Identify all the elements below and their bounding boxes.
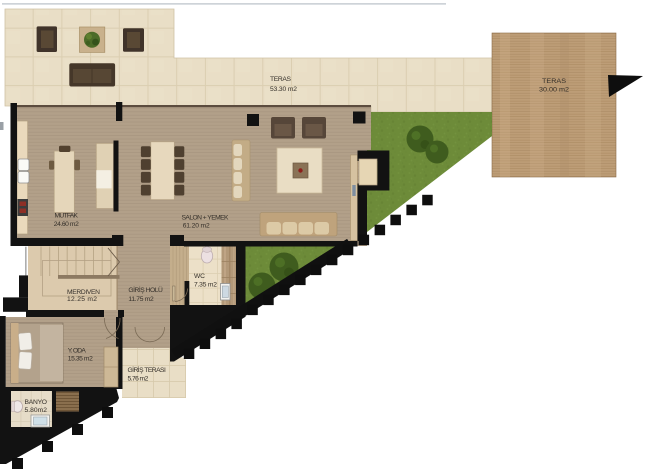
svg-text:MUTFAK: MUTFAK [55, 213, 79, 220]
svg-text:24.60 m2: 24.60 m2 [54, 221, 79, 228]
svg-text:5.76 m2: 5.76 m2 [128, 375, 149, 382]
svg-text:GİRİŞ HOLÜ: GİRİŞ HOLÜ [128, 285, 163, 294]
svg-text:SALON + YEMEK: SALON + YEMEK [182, 215, 230, 222]
svg-text:MERDIVEN: MERDIVEN [67, 289, 100, 296]
svg-text:30.00 m2: 30.00 m2 [539, 86, 569, 93]
svg-text:WC: WC [194, 273, 205, 280]
svg-text:Y. ODA: Y. ODA [68, 347, 87, 354]
svg-text:TERAS: TERAS [270, 76, 292, 83]
svg-text:12.25 m2: 12.25 m2 [67, 296, 97, 303]
svg-text:15.35 m2: 15.35 m2 [68, 355, 93, 362]
svg-text:BANYO: BANYO [25, 399, 48, 406]
svg-text:11.75 m2: 11.75 m2 [128, 296, 154, 303]
svg-text:53.30 m2: 53.30 m2 [270, 86, 297, 93]
svg-text:GİRİŞ TERASI: GİRİŞ TERASI [128, 365, 166, 374]
svg-text:5.80m2: 5.80m2 [25, 407, 48, 414]
svg-text:7.35 m2: 7.35 m2 [194, 282, 217, 289]
svg-text:TERAS: TERAS [542, 78, 567, 85]
svg-text:61.20 m2: 61.20 m2 [183, 223, 210, 230]
